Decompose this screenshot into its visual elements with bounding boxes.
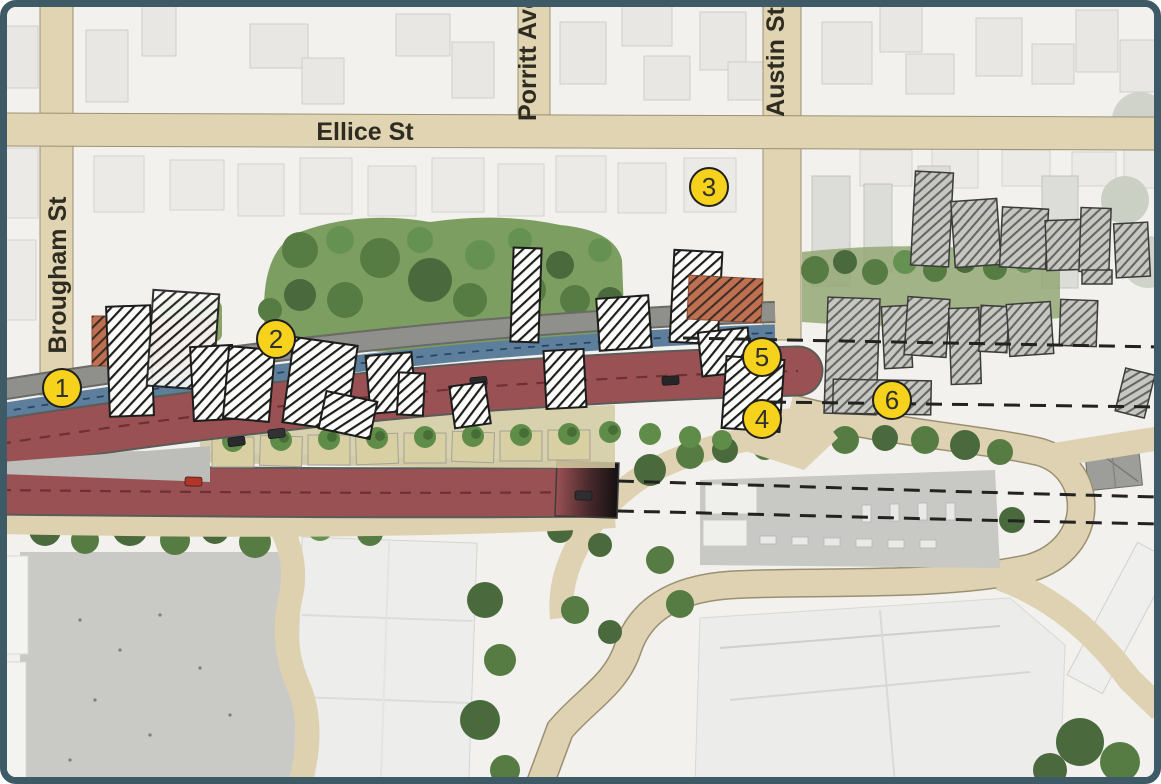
svg-text:1: 1 — [55, 373, 69, 403]
svg-text:2: 2 — [269, 324, 283, 354]
ellice-st-label: Ellice St — [316, 118, 414, 146]
map-frame: Ellice St Brougham St Porritt Ave Austin… — [0, 0, 1161, 784]
ellice-street-road — [7, 113, 1154, 150]
austin-st-label: Austin St — [762, 7, 790, 117]
map-marker-4: 4 — [743, 400, 781, 438]
tunnel-portal — [555, 461, 619, 518]
scheme-plan-map: Ellice St Brougham St Porritt Ave Austin… — [7, 7, 1154, 777]
brougham-st-label: Brougham St — [44, 196, 72, 354]
svg-text:4: 4 — [755, 404, 769, 434]
scheme-plan-screenshot: Ellice St Brougham St Porritt Ave Austin… — [0, 0, 1161, 784]
svg-text:3: 3 — [702, 172, 716, 202]
map-marker-5: 5 — [743, 338, 781, 376]
map-marker-3: 3 — [690, 168, 728, 206]
map-marker-6: 6 — [873, 381, 911, 419]
svg-text:5: 5 — [755, 342, 769, 372]
porritt-ave-label: Porritt Ave — [514, 7, 542, 121]
map-marker-1: 1 — [43, 369, 81, 407]
school-yard — [7, 552, 312, 777]
sports-courts — [294, 537, 477, 777]
map-marker-2: 2 — [257, 320, 295, 358]
svg-text:6: 6 — [885, 385, 899, 415]
